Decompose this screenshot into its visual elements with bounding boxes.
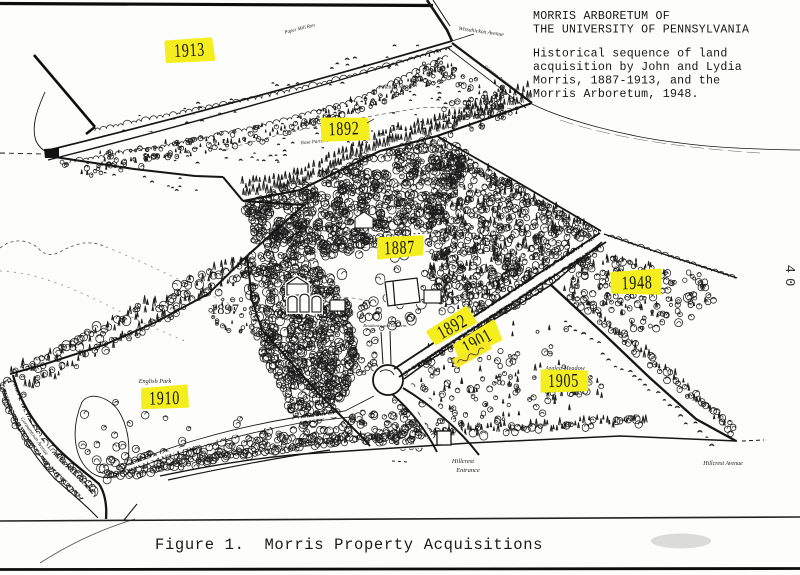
svg-text:Morris Arboretum, 1948.: Morris Arboretum, 1948.	[533, 88, 699, 101]
svg-text:Entrance: Entrance	[455, 467, 480, 474]
svg-text:1905: 1905	[548, 369, 579, 391]
svg-text:40: 40	[781, 265, 797, 292]
svg-text:MORRIS ARBORETUM OF: MORRIS ARBORETUM OF	[533, 10, 670, 23]
svg-text:1948: 1948	[621, 271, 653, 294]
svg-text:Hillcrest: Hillcrest	[451, 458, 474, 465]
svg-text:1887: 1887	[384, 236, 416, 259]
svg-text:1910: 1910	[149, 387, 180, 409]
svg-text:THE UNIVERSITY OF PENNSYLVANIA: THE UNIVERSITY OF PENNSYLVANIA	[533, 24, 749, 37]
svg-text:Morris, 1887-1913, and the: Morris, 1887-1913, and the	[533, 75, 720, 88]
svg-text:Figure 1. Morris Property Acq: Figure 1. Morris Property Acquisitions	[155, 536, 543, 554]
svg-text:1892: 1892	[328, 117, 360, 140]
svg-text:English Park: English Park	[138, 378, 172, 385]
svg-text:Hillcrest Avenue: Hillcrest Avenue	[702, 461, 743, 467]
svg-text:Historical sequence of land: Historical sequence of land	[533, 48, 728, 61]
svg-text:1897: 1897	[210, 302, 239, 318]
svg-text:Residence and Gardens: Residence and Gardens	[362, 323, 407, 328]
svg-text:1913: 1913	[173, 38, 205, 61]
svg-text:acquisition by John and Lydia: acquisition by John and Lydia	[533, 61, 742, 74]
